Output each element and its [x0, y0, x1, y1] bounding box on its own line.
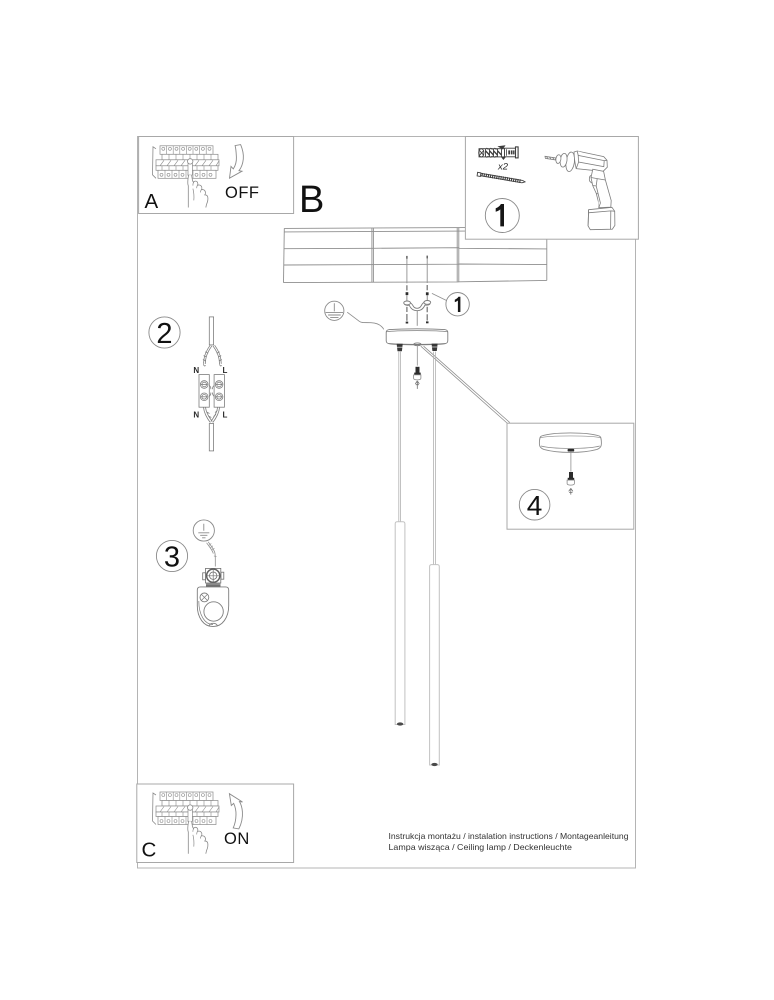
svg-text:L: L: [223, 366, 228, 375]
svg-text:N: N: [193, 366, 199, 375]
svg-text:ON: ON: [224, 830, 250, 848]
svg-text:L: L: [223, 411, 228, 420]
svg-text:3: 3: [164, 542, 180, 574]
svg-text:Instrukcja montażu / instalati: Instrukcja montażu / instalation instruc…: [389, 831, 629, 841]
svg-text:OFF: OFF: [225, 184, 260, 202]
svg-text:Lampa wisząca / Ceiling lamp /: Lampa wisząca / Ceiling lamp / Deckenleu…: [389, 842, 573, 852]
svg-text:A: A: [145, 190, 159, 213]
svg-text:x2: x2: [497, 161, 509, 172]
svg-text:N: N: [193, 411, 199, 420]
svg-text:2: 2: [156, 318, 172, 350]
svg-text:C: C: [142, 838, 157, 861]
svg-text:B: B: [299, 179, 324, 221]
svg-text:4: 4: [527, 490, 543, 521]
